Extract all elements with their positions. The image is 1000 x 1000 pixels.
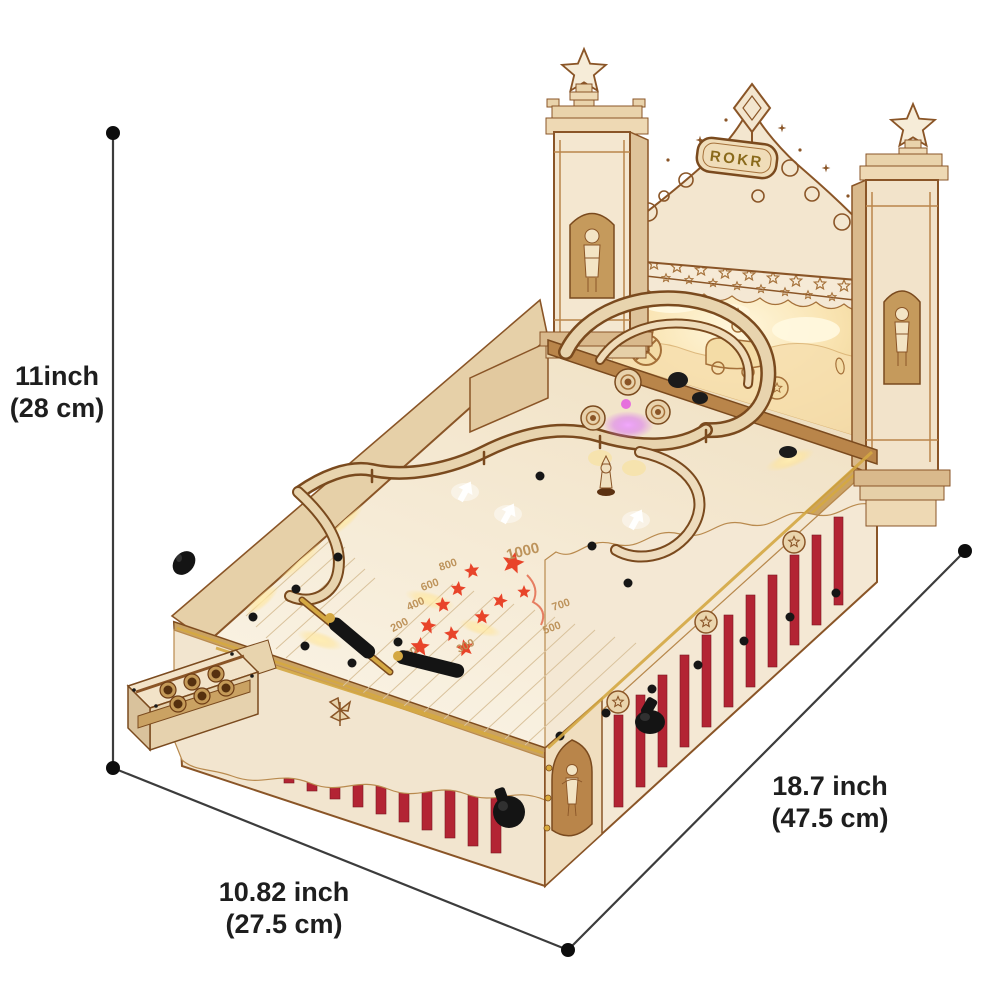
dimension-endpoint [106, 761, 120, 775]
length-side-label: 18.7 inch (47.5 cm) [771, 771, 888, 833]
height-label-cm: (28 cm) [10, 393, 105, 423]
width-front-label-inch: 10.82 inch [219, 877, 350, 907]
width-front-label-cm: (27.5 cm) [225, 909, 342, 939]
length-side-label-inch: 18.7 inch [772, 771, 888, 801]
right-pillar [852, 104, 950, 526]
dimension-endpoint [561, 943, 575, 957]
product-dimension-image: ROKR [0, 0, 1000, 1000]
dimension-endpoint [106, 126, 120, 140]
pinball-machine: ROKR [128, 49, 950, 886]
dimension-endpoint [958, 544, 972, 558]
width-front-label: 10.82 inch (27.5 cm) [219, 877, 350, 939]
height-label-inch: 11inch [15, 361, 99, 391]
height-label: 11inch (28 cm) [10, 361, 105, 423]
right-star-finial [891, 104, 935, 146]
left-side-knob [168, 547, 200, 580]
length-side-label-cm: (47.5 cm) [771, 803, 888, 833]
